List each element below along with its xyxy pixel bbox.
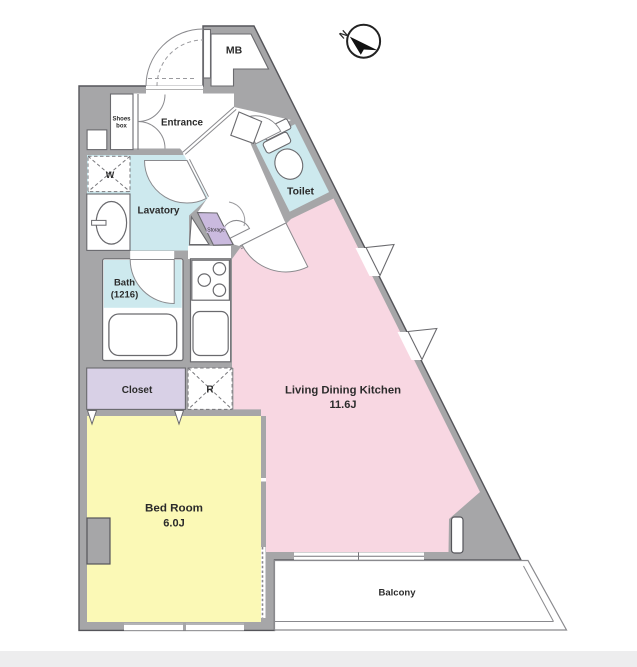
- svg-text:W: W: [106, 170, 115, 180]
- svg-text:Toilet: Toilet: [287, 187, 315, 198]
- svg-text:box: box: [116, 124, 127, 130]
- svg-text:Closet: Closet: [122, 385, 153, 396]
- svg-text:Living Dining Kitchen: Living Dining Kitchen: [285, 385, 401, 397]
- svg-text:Entrance: Entrance: [161, 118, 203, 129]
- svg-text:Bed Room: Bed Room: [145, 503, 203, 515]
- svg-text:Balcony: Balcony: [379, 588, 417, 599]
- svg-text:Shoes: Shoes: [112, 117, 131, 123]
- svg-text:MB: MB: [226, 45, 243, 57]
- svg-text:R: R: [206, 385, 214, 396]
- svg-text:Bath: Bath: [114, 278, 135, 289]
- svg-text:6.0J: 6.0J: [163, 518, 184, 530]
- svg-text:(1216): (1216): [111, 290, 138, 301]
- svg-text:Lavatory: Lavatory: [138, 206, 180, 217]
- svg-text:Storage: Storage: [207, 228, 225, 234]
- svg-text:11.6J: 11.6J: [330, 399, 357, 411]
